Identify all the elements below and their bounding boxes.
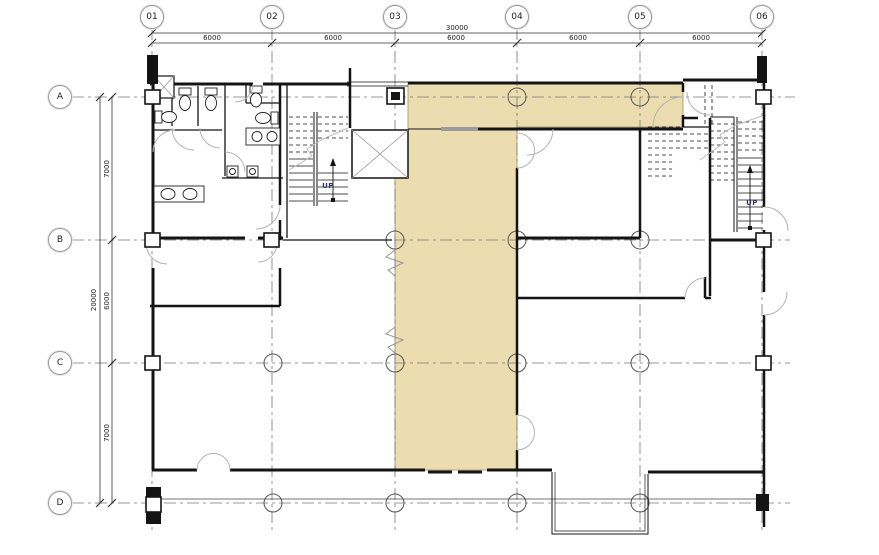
stair-right-up-label: UP [746, 199, 758, 207]
grid-bubble-01: 01 [140, 5, 164, 29]
dim-left-seg-3: 7000 [103, 424, 111, 442]
grid-bubble-C: C [48, 351, 72, 375]
stair-left-up-label: UP [322, 182, 334, 190]
dim-left-seg-1: 7000 [103, 160, 111, 178]
grid-bubble-05: 05 [628, 5, 652, 29]
dim-left-total: 20000 [90, 289, 98, 311]
dim-left-seg-2: 6000 [103, 292, 111, 310]
dim-top-total: 30000 [446, 24, 468, 32]
dim-top-seg-4: 6000 [569, 34, 587, 42]
bathroom-fixtures [154, 86, 280, 202]
floor-plan-page: 01 02 03 04 05 06 A B C D 30000 6000 600… [0, 0, 879, 555]
grid-bubble-06: 06 [750, 5, 774, 29]
grid-bubble-D: D [48, 491, 72, 515]
grid-bubble-03: 03 [383, 5, 407, 29]
grid-bubble-A: A [48, 85, 72, 109]
grid-bubble-04: 04 [505, 5, 529, 29]
dim-top-seg-3: 6000 [447, 34, 465, 42]
grid-bubble-02: 02 [260, 5, 284, 29]
stair-left [289, 112, 348, 206]
plan-linework [0, 0, 879, 555]
dim-top-seg-5: 6000 [692, 34, 710, 42]
elevator-shaft-left [352, 130, 408, 178]
grid-bubble-B: B [48, 228, 72, 252]
dim-top-seg-1: 6000 [203, 34, 221, 42]
dim-top-seg-2: 6000 [324, 34, 342, 42]
